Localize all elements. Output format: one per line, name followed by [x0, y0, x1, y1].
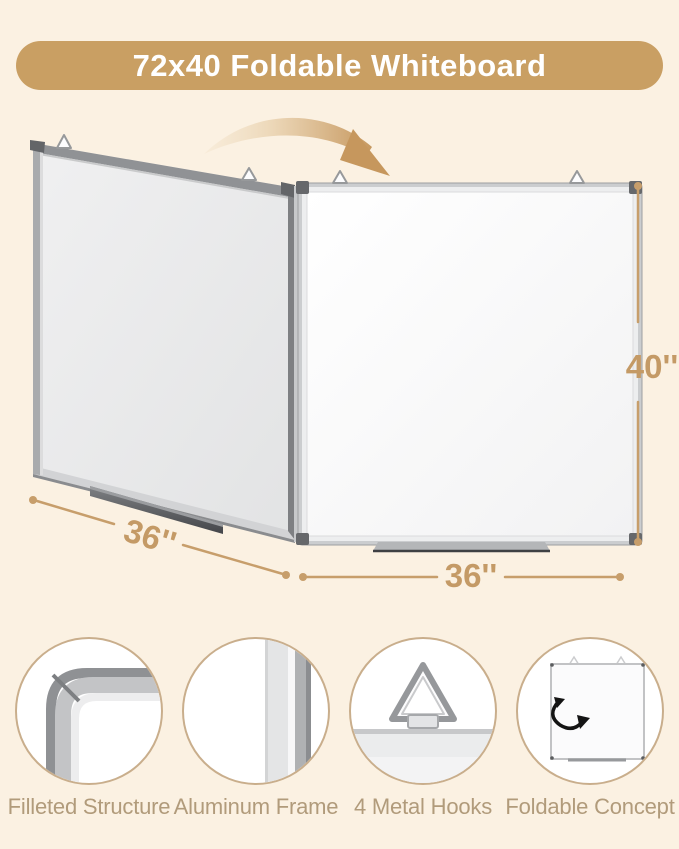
feature-item-4-metal-hooks: 4 Metal Hooks — [342, 637, 504, 820]
product-infographic: 72x40 Foldable Whiteboard — [0, 0, 679, 849]
feature-item-foldable-concept: Foldable Concept — [509, 637, 671, 820]
feature-label: Filleted Structure — [8, 794, 171, 820]
corner-cap — [296, 533, 309, 545]
frame-profile-icon — [184, 639, 328, 783]
feature-item-aluminum-frame: Aluminum Frame — [175, 637, 337, 820]
triangle-hook-icon — [351, 639, 495, 783]
corner-cap — [296, 181, 309, 194]
feature-item-filleted-structure: Filleted Structure — [8, 637, 170, 820]
feature-circle — [516, 637, 664, 785]
folding-board-icon — [518, 639, 662, 783]
height-dimension-label: 40'' — [622, 349, 679, 385]
feature-circle — [15, 637, 163, 785]
feature-circle — [349, 637, 497, 785]
feature-label: Aluminum Frame — [174, 794, 339, 820]
whiteboard-diagram — [0, 0, 679, 630]
feature-list: Filleted Structure Aluminum Frame — [0, 637, 679, 820]
fold-direction-arrow — [204, 118, 390, 176]
feature-circle — [182, 637, 330, 785]
left-whiteboard-panel — [30, 140, 295, 543]
feature-label: 4 Metal Hooks — [354, 794, 492, 820]
rounded-corner-icon — [17, 639, 161, 783]
marker-tray — [373, 542, 550, 551]
feature-label: Foldable Concept — [505, 794, 674, 820]
corner-cap — [30, 140, 45, 153]
right-whiteboard-panel — [294, 181, 642, 551]
whiteboard-illustration: 40'' 36'' 36'' — [0, 0, 679, 630]
bottom-width-dimension-label: 36'' — [427, 558, 515, 594]
